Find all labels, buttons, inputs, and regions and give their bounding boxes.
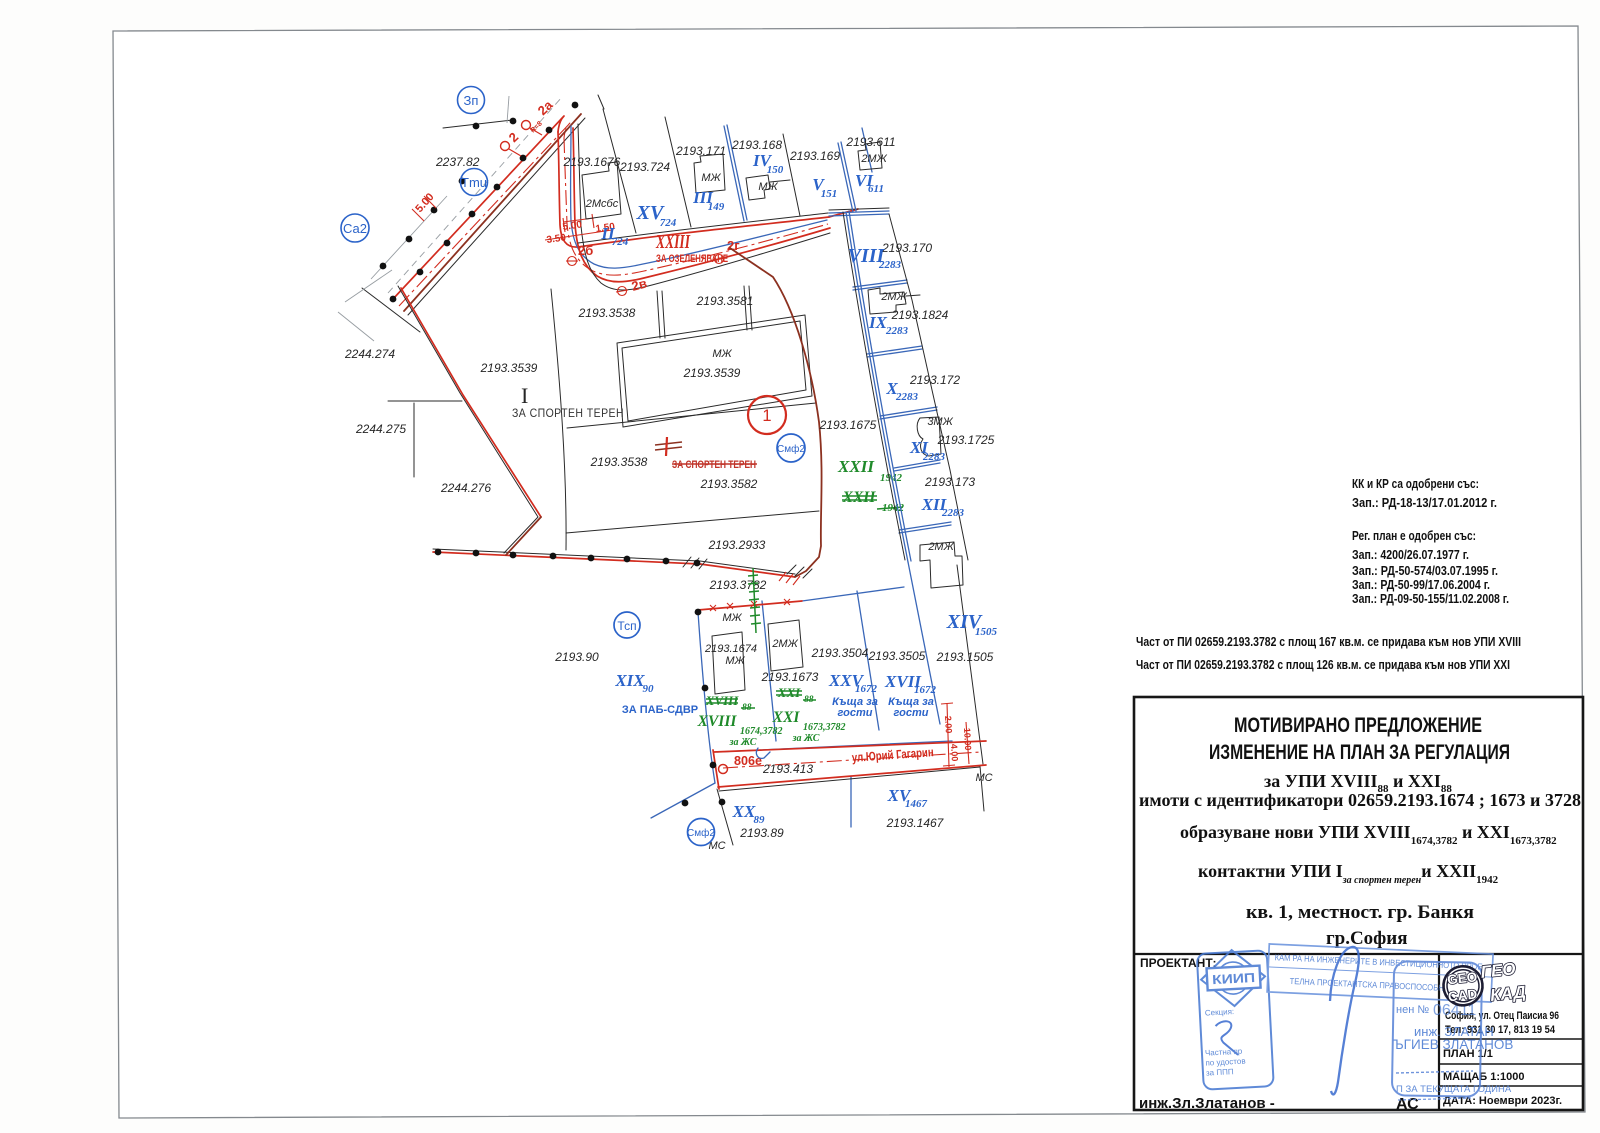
svg-text:2193.3581: 2193.3581 (696, 294, 754, 308)
svg-text:2193.1673: 2193.1673 (761, 670, 819, 684)
svg-text:2193.1675: 2193.1675 (819, 418, 877, 432)
svg-text:XVIII: XVIII (705, 693, 739, 708)
svg-text:724: 724 (612, 236, 629, 248)
svg-text:XXI: XXI (772, 709, 801, 726)
svg-text:КАД: КАД (1489, 982, 1526, 1005)
svg-text:Секция:: Секция: (1205, 1007, 1235, 1018)
svg-text:КК и КР са одобрени със:: КК и КР са одобрени със: (1352, 477, 1479, 491)
svg-text:XXI: XXI (777, 685, 801, 700)
svg-text:Тmu: Тmu (461, 175, 487, 190)
svg-text:АС: АС (1396, 1096, 1419, 1113)
svg-text:Рег. план е одобрен със:: Рег. план е одобрен със: (1352, 529, 1476, 543)
svg-text:КИИП: КИИП (1212, 970, 1256, 987)
svg-text:П ЗА ТЕКУЩАТА ГОДИНА: П ЗА ТЕКУЩАТА ГОДИНА (1396, 1084, 1512, 1095)
svg-text:1672: 1672 (855, 683, 878, 695)
svg-text:XXIII: XXIII (655, 231, 691, 253)
svg-text:90: 90 (643, 683, 655, 695)
svg-text:ГЕО: ГЕО (1480, 959, 1517, 982)
svg-text:2193.3538: 2193.3538 (590, 455, 648, 469)
svg-text:МЖ: МЖ (712, 348, 732, 360)
svg-text:89: 89 (754, 814, 766, 826)
svg-text:2193.173: 2193.173 (924, 475, 975, 489)
svg-text:2.00: 2.00 (943, 716, 954, 734)
svg-text:Част от ПИ 02659.2193.3782 с п: Част от ПИ 02659.2193.3782 с площ 167 кв… (1136, 635, 1521, 649)
svg-text:2МЖ: 2МЖ (927, 541, 954, 553)
svg-text:2193.89: 2193.89 (739, 826, 784, 840)
svg-text:611: 611 (868, 183, 884, 195)
svg-text:2193.3539: 2193.3539 (683, 366, 741, 380)
svg-text:2244.276: 2244.276 (440, 481, 491, 495)
svg-text:2244.274: 2244.274 (344, 347, 395, 361)
svg-text:I: I (521, 383, 528, 408)
svg-text:2283: 2283 (922, 451, 946, 463)
svg-text:806е: 806е (734, 753, 762, 768)
svg-text:2193.171: 2193.171 (675, 144, 726, 158)
svg-text:724: 724 (660, 217, 677, 229)
svg-text:гости: гости (894, 707, 929, 719)
svg-text:ПРОЕКТАНТ:: ПРОЕКТАНТ: (1140, 956, 1217, 970)
svg-text:XIX: XIX (614, 671, 645, 690)
svg-text:1505: 1505 (975, 626, 998, 638)
svg-text:ЗА СПОРТЕН ТЕРЕН: ЗА СПОРТЕН ТЕРЕН (672, 459, 756, 471)
svg-text:Зп: Зп (464, 93, 479, 108)
svg-text:2193.724: 2193.724 (619, 160, 670, 174)
svg-text:151: 151 (821, 188, 838, 200)
svg-text:МЖ: МЖ (725, 655, 745, 667)
svg-text:МЖ: МЖ (722, 612, 742, 624)
svg-text:Зап.: РД-18-13/17.01.2012 г.: Зап.: РД-18-13/17.01.2012 г. (1352, 496, 1497, 510)
svg-text:кв. 1, местност. гр. Банкя: кв. 1, местност. гр. Банкя (1246, 902, 1474, 923)
svg-text:2МЖ: 2МЖ (880, 291, 907, 303)
svg-text:2193.1467: 2193.1467 (886, 816, 945, 830)
svg-text:2193.1676: 2193.1676 (563, 155, 621, 169)
svg-text:2193.170: 2193.170 (881, 241, 932, 255)
svg-text:МС: МС (975, 772, 992, 784)
svg-text:1467: 1467 (905, 798, 928, 810)
svg-text:1: 1 (762, 407, 771, 425)
svg-text:Са2: Са2 (343, 221, 367, 236)
svg-text:2193.3505: 2193.3505 (868, 649, 926, 663)
svg-text:2193.169: 2193.169 (789, 149, 840, 163)
svg-text:Зап.: РД-50-99/17.06.2004 г.: Зап.: РД-50-99/17.06.2004 г. (1352, 578, 1490, 592)
svg-text:149: 149 (708, 201, 725, 213)
svg-text:МАЩАБ 1:1000: МАЩАБ 1:1000 (1443, 1071, 1524, 1083)
svg-text:Зап.: РД-09-50-155/11.02.2008: Зап.: РД-09-50-155/11.02.2008 г. (1352, 592, 1509, 606)
svg-text:имоти с идентификатори 02659.2: имоти с идентификатори 02659.2193.1674 ;… (1139, 790, 1581, 810)
svg-text:ЗА ОЗЕЛЕНЯВАНЕ: ЗА ОЗЕЛЕНЯВАНЕ (656, 253, 728, 265)
svg-text:1673,3782: 1673,3782 (803, 722, 846, 733)
svg-text:3МЖ: 3МЖ (927, 416, 953, 428)
svg-text:МЖ: МЖ (758, 181, 778, 193)
svg-text:Смф2: Смф2 (777, 443, 805, 455)
svg-text:ЗА СПОРТЕН ТЕРЕН: ЗА СПОРТЕН ТЕРЕН (512, 406, 624, 420)
svg-text:Смф2: Смф2 (687, 827, 715, 839)
svg-text:Зап.: 4200/26.07.1977 г.: Зап.: 4200/26.07.1977 г. (1352, 548, 1469, 562)
svg-text:GEO: GEO (1447, 969, 1478, 987)
svg-text:1672: 1672 (914, 684, 937, 696)
svg-text:1674,3782: 1674,3782 (740, 726, 783, 737)
svg-text:Зап.: РД-50-574/03.07.1995 г.: Зап.: РД-50-574/03.07.1995 г. (1352, 564, 1498, 578)
svg-text:2193.3782: 2193.3782 (709, 578, 767, 592)
svg-text:2193.168: 2193.168 (731, 138, 782, 152)
svg-text:XXII: XXII (842, 489, 877, 506)
svg-text:2244.275: 2244.275 (355, 422, 406, 436)
svg-text:2193.2933: 2193.2933 (708, 538, 766, 552)
svg-text:IX: IX (868, 313, 888, 332)
svg-text:2МЖ: 2МЖ (860, 153, 887, 165)
svg-text:2193.1824: 2193.1824 (891, 308, 949, 322)
svg-text:2193.611: 2193.611 (845, 135, 895, 149)
svg-text:2б: 2б (578, 243, 593, 258)
svg-text:Тсп: Тсп (617, 619, 636, 633)
svg-text:инж.Зл.Златанов -: инж.Зл.Златанов - (1139, 1095, 1275, 1112)
svg-text:2283: 2283 (895, 391, 919, 403)
svg-text:за ЖС: за ЖС (792, 733, 820, 744)
svg-text:10.00: 10.00 (962, 728, 973, 751)
svg-text:2193.3582: 2193.3582 (700, 477, 758, 491)
svg-text:2193.1674: 2193.1674 (704, 643, 757, 655)
svg-text:2283: 2283 (885, 325, 909, 337)
svg-text:150: 150 (767, 164, 784, 176)
svg-text:ЗА ПАБ-СДВР: ЗА ПАБ-СДВР (622, 704, 698, 716)
svg-text:2193.3504: 2193.3504 (811, 646, 869, 660)
svg-text:МЖ: МЖ (701, 172, 721, 184)
svg-text:нен №: нен № (1396, 1004, 1429, 1016)
svg-text:2Мсбс: 2Мсбс (585, 198, 619, 210)
svg-text:2193.90: 2193.90 (554, 650, 599, 664)
svg-text:ЪГИЕВ ЗЛАТАНОВ: ЪГИЕВ ЗЛАТАНОВ (1393, 1037, 1513, 1052)
svg-text:4.00: 4.00 (949, 744, 960, 762)
svg-text:гр.София: гр.София (1326, 928, 1408, 949)
svg-text:2193.172: 2193.172 (909, 373, 960, 387)
svg-text:за ППП: за ППП (1206, 1067, 1234, 1077)
svg-text:2193.1505: 2193.1505 (936, 650, 994, 664)
svg-text:XX: XX (732, 802, 756, 821)
svg-text:2283: 2283 (878, 259, 902, 271)
svg-text:2193.1725: 2193.1725 (937, 433, 995, 447)
svg-text:2283: 2283 (941, 507, 965, 519)
svg-text:2193.3538: 2193.3538 (578, 306, 636, 320)
svg-text:за ЖС: за ЖС (729, 737, 757, 748)
svg-text:XXII: XXII (837, 457, 875, 476)
svg-text:Част от ПИ 02659.2193.3782 с п: Част от ПИ 02659.2193.3782 с площ 126 кв… (1136, 658, 1510, 672)
svg-text:2МЖ: 2МЖ (771, 638, 798, 650)
svg-text:МОТИВИРАНО ПРЕДЛОЖЕНИЕ: МОТИВИРАНО ПРЕДЛОЖЕНИЕ (1234, 714, 1482, 737)
svg-text:CAD: CAD (1447, 986, 1478, 1004)
svg-text:2193.3539: 2193.3539 (480, 361, 538, 375)
svg-text:ИЗМЕНЕНИЕ НА ПЛАН ЗА РЕГУЛАЦИЯ: ИЗМЕНЕНИЕ НА ПЛАН ЗА РЕГУЛАЦИЯ (1209, 741, 1510, 764)
svg-text:гости: гости (838, 707, 873, 719)
svg-text:2237.82: 2237.82 (435, 155, 480, 169)
svg-text:2193.413: 2193.413 (762, 762, 813, 776)
svg-text:XVIII: XVIII (697, 713, 738, 730)
